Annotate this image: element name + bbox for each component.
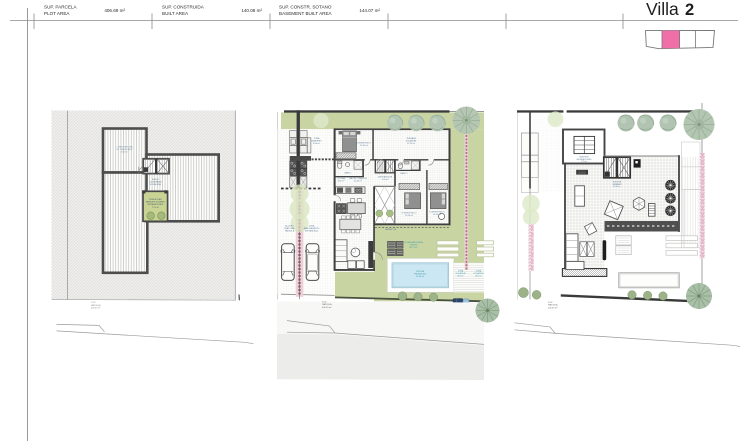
svg-text:EN PARCELA: EN PARCELA <box>305 230 318 233</box>
svg-text:4.05 m²: 4.05 m² <box>382 178 389 181</box>
svg-text:12.01 m²: 12.01 m² <box>360 144 368 147</box>
svg-text:SOLARIUM: SOLARIUM <box>474 272 484 275</box>
svg-text:CUBIERTA PLANA: CUBIERTA PLANA <box>116 145 133 148</box>
svg-text:PARCELA: PARCELA <box>285 230 295 233</box>
svg-text:SOLARIUM: SOLARIUM <box>456 272 466 275</box>
svg-text:41.95 m²: 41.95 m² <box>613 185 621 188</box>
svg-text:PARCELA: PARCELA <box>548 304 558 307</box>
svg-text:ZONA: ZONA <box>476 270 482 273</box>
svg-text:Villa: Villa <box>646 0 679 19</box>
svg-text:406.69 m²: 406.69 m² <box>91 307 101 310</box>
svg-text:TERRAZA: TERRAZA <box>406 137 416 140</box>
svg-text:406.69 m²: 406.69 m² <box>104 8 125 13</box>
svg-text:LAVADERO: LAVADERO <box>311 140 322 143</box>
svg-text:BARBACOA: BARBACOA <box>385 228 397 231</box>
svg-text:NO TRANSITABLE: NO TRANSITABLE <box>116 148 133 151</box>
svg-text:12.12 m²: 12.12 m² <box>407 142 415 145</box>
svg-text:8.87 m²: 8.87 m² <box>338 180 345 183</box>
svg-text:SUP. PARCELA: SUP. PARCELA <box>44 4 77 9</box>
svg-text:88.75 m²: 88.75 m² <box>410 246 418 249</box>
svg-text:BAÑO 2: BAÑO 2 <box>401 172 408 175</box>
svg-text:10.24 m²: 10.24 m² <box>405 214 413 217</box>
svg-text:PLOT AREA: PLOT AREA <box>44 11 70 16</box>
svg-text:140.08 m²: 140.08 m² <box>241 8 262 13</box>
svg-text:COCINA: COCINA <box>337 177 345 180</box>
svg-text:7.21 m²: 7.21 m² <box>152 206 159 209</box>
svg-text:SUP. CONSTR. SOTANO: SUP. CONSTR. SOTANO <box>279 4 332 9</box>
svg-text:ZONA: ZONA <box>458 270 464 273</box>
svg-text:ZONA: ZONA <box>309 225 315 228</box>
svg-text:PANELES SOLARES: PANELES SOLARES <box>146 201 166 204</box>
svg-text:18.00 m²: 18.00 m² <box>475 275 483 278</box>
svg-text:PEATONAL: PEATONAL <box>284 227 295 230</box>
svg-text:BASEMENT BUILT AREA: BASEMENT BUILT AREA <box>279 11 333 16</box>
svg-text:8.00 m²: 8.00 m² <box>313 142 320 145</box>
svg-text:LUCERNARIO: LUCERNARIO <box>149 180 163 183</box>
svg-text:APARCAMIENTO: APARCAMIENTO <box>304 227 320 230</box>
svg-text:SALON COMEDOR: SALON COMEDOR <box>349 177 367 180</box>
svg-text:BUILT AREA: BUILT AREA <box>162 11 189 16</box>
svg-text:ACCESO: ACCESO <box>285 225 294 228</box>
svg-text:18.00 m²: 18.00 m² <box>457 275 465 278</box>
svg-text:2: 2 <box>685 1 694 19</box>
svg-text:32.00 m²: 32.00 m² <box>416 275 424 278</box>
svg-text:30.05 m²: 30.05 m² <box>121 151 129 154</box>
svg-text:ESCALERA: ESCALERA <box>150 183 161 186</box>
svg-text:10.55 m²: 10.55 m² <box>433 213 441 216</box>
svg-text:INSTALACIONES: INSTALACIONES <box>147 203 164 206</box>
svg-text:PRIVADA 8x4: PRIVADA 8x4 <box>414 273 427 276</box>
svg-text:406.69 m²: 406.69 m² <box>548 306 558 309</box>
svg-text:ZONA: ZONA <box>314 137 320 140</box>
svg-text:7.75 m²: 7.75 m² <box>581 160 588 163</box>
svg-text:SOLARIUM: SOLARIUM <box>406 139 417 142</box>
svg-text:SUP. CONSTRUIDA: SUP. CONSTRUIDA <box>162 4 205 9</box>
svg-text:ZONA SOLAR: ZONA SOLAR <box>149 198 162 201</box>
svg-text:PISCINA: PISCINA <box>416 270 425 273</box>
svg-text:ZONA AJARDINADA: ZONA AJARDINADA <box>404 241 423 244</box>
svg-text:406.69 m²: 406.69 m² <box>322 306 332 309</box>
svg-text:PARCELA: PARCELA <box>322 303 332 306</box>
svg-text:24.65 m²: 24.65 m² <box>354 180 362 183</box>
svg-text:PARCELA: PARCELA <box>91 304 101 307</box>
svg-text:BAÑO 1: BAÑO 1 <box>345 171 352 174</box>
svg-text:144.07 m²: 144.07 m² <box>359 8 380 13</box>
